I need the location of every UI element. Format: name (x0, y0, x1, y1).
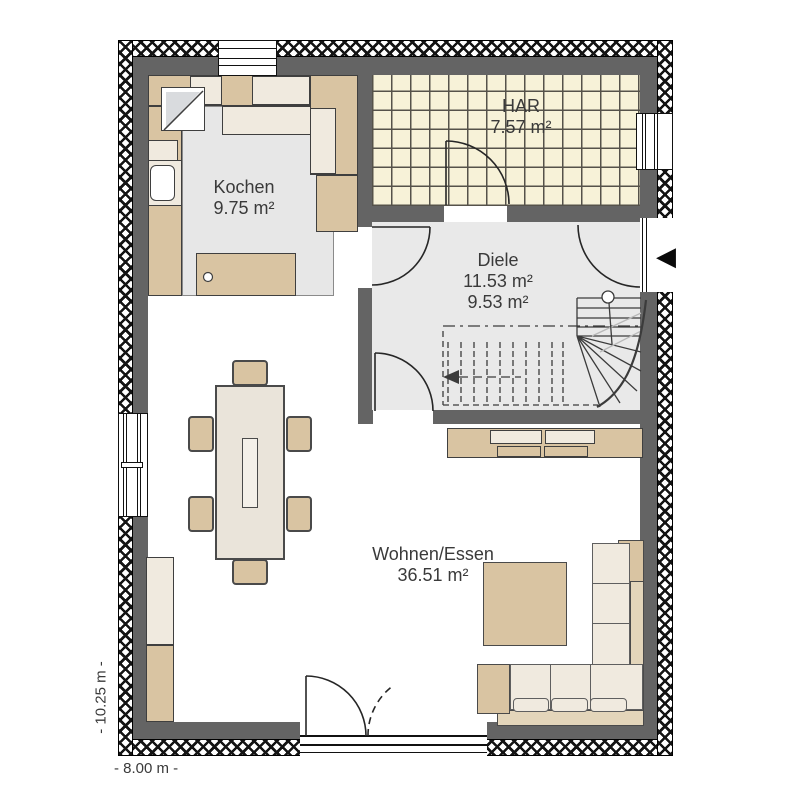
sideboard-door (545, 430, 595, 444)
dining-chair (286, 496, 312, 532)
sideboard-door (490, 430, 542, 444)
exterior-hatch-top (118, 40, 673, 57)
terrace-door-window (300, 722, 487, 756)
dining-chair (232, 559, 268, 585)
har-label: HAR 7.57 m² (461, 96, 581, 138)
kitchen-sink (150, 165, 175, 201)
sofa-cushion (592, 583, 630, 624)
dining-chair (232, 360, 268, 386)
entrance-arrow-icon: ◀ (656, 243, 676, 269)
room-area: 11.53 m² (438, 271, 558, 292)
kitchen-island (196, 253, 296, 296)
room-name: Kochen (184, 177, 304, 198)
wohnen-label: Wohnen/Essen 36.51 m² (353, 544, 513, 586)
kochen-label: Kochen 9.75 m² (184, 177, 304, 219)
kitchen-corner-unit (161, 87, 205, 131)
table-runner (242, 438, 258, 508)
room-name: Diele (438, 250, 558, 271)
kitchen-cabinet (148, 140, 178, 162)
window-left (118, 413, 148, 517)
dimension-width: - 8.00 m - (114, 760, 178, 777)
exterior-hatch-left (118, 40, 133, 756)
dining-chair (188, 416, 214, 452)
dining-table (215, 385, 285, 560)
room-area: 9.75 m² (184, 198, 304, 219)
sofa-base-bottom (497, 710, 644, 726)
wall-kochen-har (358, 75, 372, 227)
wall-har-bottom-right (507, 206, 640, 222)
window-top (218, 40, 277, 76)
room-name: Wohnen/Essen (353, 544, 513, 565)
har-tile-floor (372, 75, 640, 206)
sofa-cushion (592, 623, 630, 665)
kitchen-cabinet (252, 76, 310, 105)
wall-diele-bottom (433, 410, 657, 424)
sofa-armrest-left (477, 664, 510, 714)
sofa-cushion (592, 543, 630, 584)
cabinet-left-top (146, 557, 174, 645)
sofa-front-cushion (590, 698, 627, 712)
kitchen-tall-unit (316, 175, 358, 232)
sideboard-drawer (497, 446, 541, 457)
dining-chair (188, 496, 214, 532)
room-name: HAR (461, 96, 581, 117)
dining-chair (286, 416, 312, 452)
sofa-front-cushion (513, 698, 549, 712)
window-har-right (636, 113, 673, 170)
wall-diele-left (358, 288, 373, 424)
floor-plan: ◀ Kochen 9.75 m² HAR 7.57 m² Diele 11.53… (0, 0, 800, 800)
room-area: 36.51 m² (353, 565, 513, 586)
sideboard-drawer (544, 446, 588, 457)
diele-label: Diele 11.53 m² 9.53 m² (438, 250, 558, 313)
room-area: 9.53 m² (438, 292, 558, 313)
sofa-front-cushion (551, 698, 588, 712)
wall-har-bottom-left (358, 206, 444, 222)
dimension-height: - 10.25 m - (93, 643, 110, 753)
cabinet-left-bottom (146, 645, 174, 722)
kitchen-cabinet (310, 108, 336, 174)
room-area: 7.57 m² (461, 117, 581, 138)
